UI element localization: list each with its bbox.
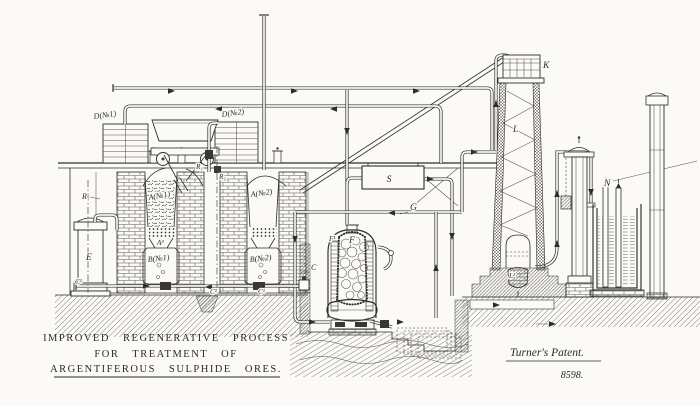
seal-tank	[590, 177, 644, 296]
label-b-no1: B(№1)	[147, 253, 170, 264]
apparatus-n	[561, 136, 697, 297]
tower-top-tank	[503, 55, 540, 79]
label-d-no1: D(№1)	[92, 109, 117, 121]
label-a-no2: A(№2)	[249, 187, 273, 199]
label-d-no2: D(№2)	[220, 107, 245, 119]
valve-r1	[205, 150, 213, 159]
patent-number: 8598.	[561, 370, 584, 381]
counterweight	[561, 196, 571, 209]
title-line-1: IMPROVED REGENERATIVE PROCESS	[43, 333, 289, 344]
label-f1: F¹	[328, 235, 336, 243]
label-s: S	[387, 175, 392, 185]
label-f: F	[348, 236, 355, 246]
title-line-3: ARGENTIFEROUS SULPHIDE ORES.	[50, 364, 282, 375]
scrubber-s	[362, 163, 424, 189]
label-c1-mid: C¹	[210, 288, 217, 296]
flue-valve	[299, 280, 309, 290]
tower-arch	[506, 235, 530, 268]
regenerator-d-no1	[103, 124, 148, 163]
tower-baffles	[500, 91, 537, 236]
label-k: K	[542, 61, 550, 71]
patent-drawing-page: D(№1) D(№2) R R₁ R₂ E A(№1) A² B(№1) A(№…	[0, 0, 700, 406]
label-n: N	[603, 179, 611, 189]
title-block: IMPROVED REGENERATIVE PROCESS FOR TREATM…	[43, 333, 289, 377]
attribution-text: Turner's Patent.	[510, 347, 584, 359]
regenerator-d-no2	[215, 122, 258, 163]
flue-damper	[160, 282, 171, 290]
label-l: L	[512, 125, 518, 135]
ore-charge	[146, 178, 176, 227]
label-r2: R₂	[218, 173, 226, 181]
label-c1-right: C¹	[258, 288, 265, 296]
grate	[251, 228, 277, 237]
label-e: E	[85, 253, 92, 263]
n-column	[572, 157, 587, 276]
valve-r2	[214, 166, 221, 173]
patent-drawing: D(№1) D(№2) R R₁ R₂ E A(№1) A² B(№1) A(№…	[0, 0, 700, 406]
label-a2: A²	[156, 239, 164, 247]
underground-flue	[470, 300, 554, 309]
standpipe	[646, 93, 668, 299]
label-r1: R₁	[195, 163, 203, 171]
attribution-block: Turner's Patent. 8598.	[506, 347, 601, 381]
tower-right-column	[533, 83, 545, 270]
label-r: R	[81, 192, 87, 201]
label-b-no2: B(№2)	[249, 253, 272, 264]
label-l2: L²	[508, 272, 516, 280]
tower-left-column	[492, 83, 506, 270]
grate	[149, 228, 175, 237]
label-c: C	[311, 263, 317, 272]
retort-charge	[338, 237, 369, 299]
label-g: G	[410, 203, 417, 213]
tap-valve	[380, 320, 389, 328]
furnace-a-no1	[94, 168, 310, 293]
title-line-2: FOR TREATMENT OF	[94, 349, 237, 360]
label-c1-left: C¹	[75, 278, 82, 286]
